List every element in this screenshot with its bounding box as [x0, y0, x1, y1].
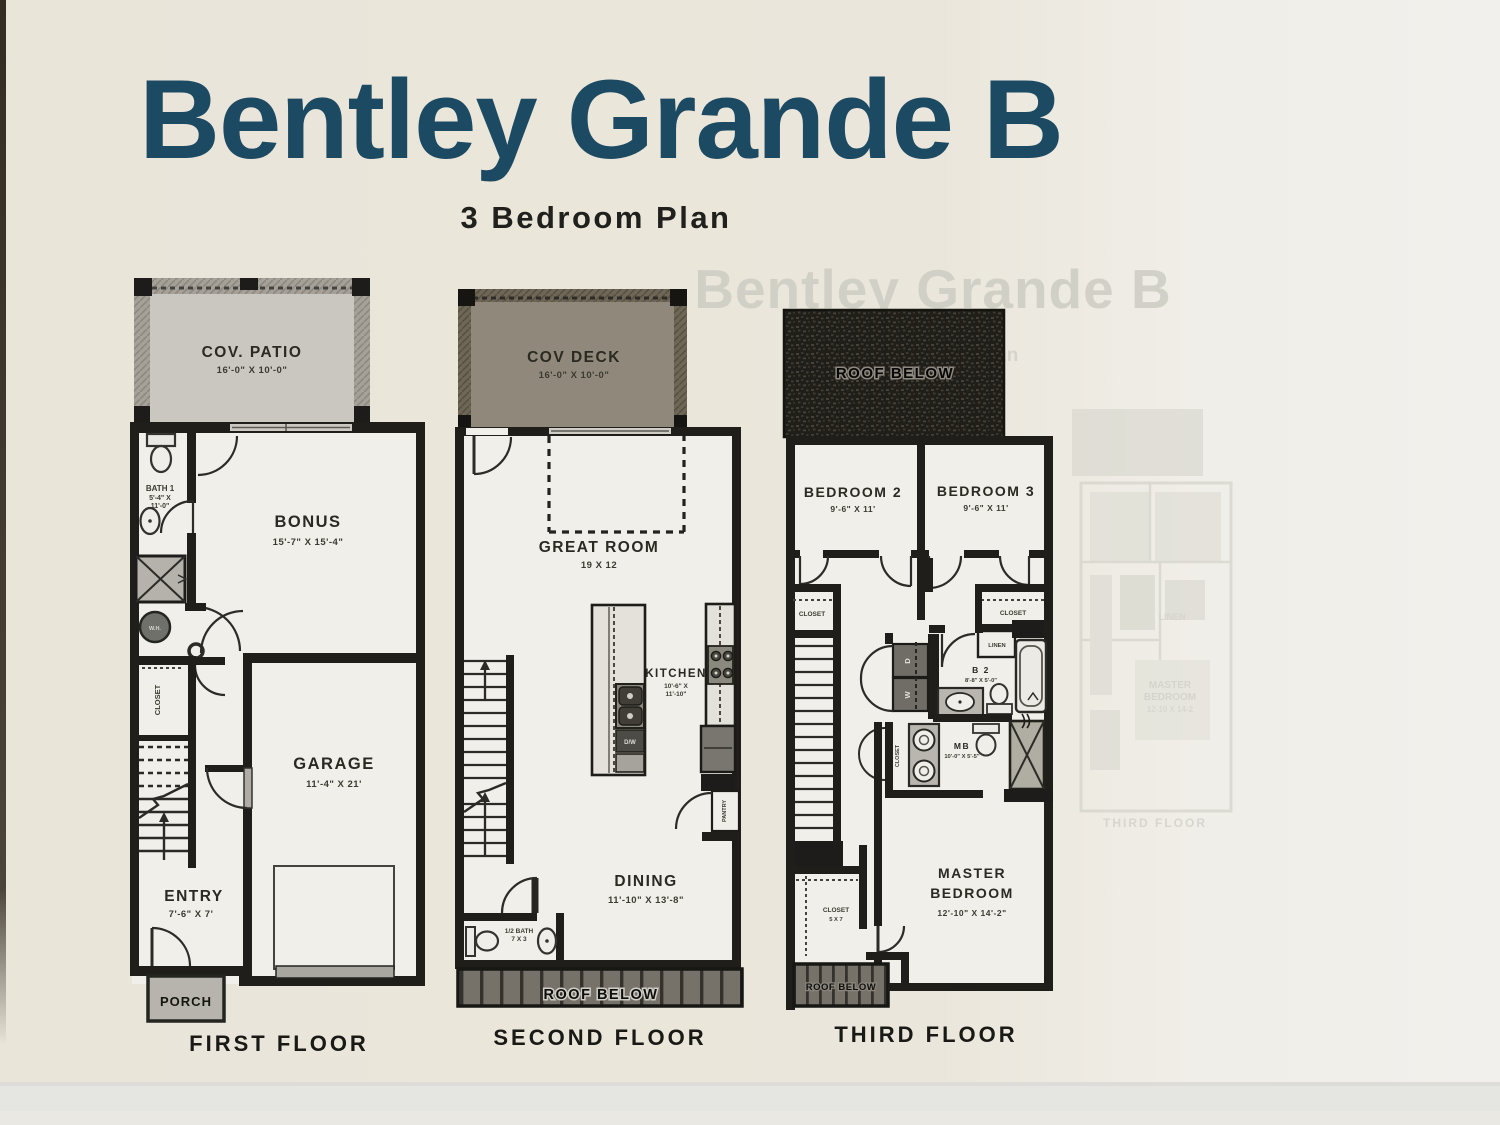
svg-text:3 Bedroom Plan: 3 Bedroom Plan [461, 200, 732, 235]
svg-text:BEDROOM: BEDROOM [1144, 692, 1196, 703]
svg-text:11'-4" X 21': 11'-4" X 21' [306, 779, 362, 790]
svg-text:B 2: B 2 [972, 665, 990, 675]
svg-text:GARAGE: GARAGE [293, 755, 374, 773]
svg-text:ROOF BELOW: ROOF BELOW [836, 365, 954, 382]
svg-text:MASTER: MASTER [938, 865, 1006, 881]
svg-text:16'-0" X 10'-0": 16'-0" X 10'-0" [539, 370, 610, 381]
svg-text:19 X 12: 19 X 12 [581, 560, 617, 571]
svg-text:W.H.: W.H. [149, 626, 161, 632]
svg-text:9'-6" X 11': 9'-6" X 11' [830, 504, 875, 514]
svg-text:5 X 7: 5 X 7 [829, 917, 843, 923]
svg-text:Bentley Grande B: Bentley Grande B [139, 57, 1063, 182]
svg-text:BONUS: BONUS [274, 513, 341, 531]
svg-text:THIRD FLOOR: THIRD FLOOR [834, 1022, 1017, 1047]
svg-text:MASTER: MASTER [1149, 680, 1192, 691]
svg-text:11'-10": 11'-10" [666, 691, 687, 698]
svg-text:LINEN: LINEN [988, 643, 1005, 649]
svg-text:8'-8" X 5'-0": 8'-8" X 5'-0" [965, 678, 997, 684]
svg-text:15'-7" X 15'-4": 15'-7" X 15'-4" [273, 537, 344, 548]
svg-text:MB: MB [954, 741, 970, 751]
svg-text:BEDROOM 2: BEDROOM 2 [804, 484, 902, 500]
svg-text:PANTRY: PANTRY [722, 800, 728, 822]
svg-text:1/2 BATH: 1/2 BATH [505, 928, 534, 935]
svg-text:COV DECK: COV DECK [527, 349, 621, 366]
svg-text:BEDROOM 3: BEDROOM 3 [937, 483, 1035, 499]
svg-text:CLOSET: CLOSET [799, 611, 825, 618]
svg-text:11'-10" X 13'-8": 11'-10" X 13'-8" [608, 895, 684, 906]
svg-text:DINING: DINING [614, 873, 677, 890]
svg-text:SECOND FLOOR: SECOND FLOOR [493, 1025, 706, 1050]
svg-text:THIRD FLOOR: THIRD FLOOR [1103, 816, 1207, 830]
svg-text:ROOF BELOW: ROOF BELOW [544, 987, 659, 1003]
svg-text:10'-0" X 5'-5": 10'-0" X 5'-5" [944, 754, 980, 760]
svg-text:7 X 3: 7 X 3 [511, 936, 527, 943]
svg-text:CLOSET: CLOSET [895, 744, 901, 767]
svg-text:D: D [903, 658, 912, 664]
svg-text:12-10 X 14-2: 12-10 X 14-2 [1147, 705, 1194, 714]
svg-text:W: W [903, 691, 912, 699]
svg-text:FIRST FLOOR: FIRST FLOOR [189, 1031, 369, 1056]
svg-text:5'-4" X: 5'-4" X [149, 495, 171, 502]
svg-text:PORCH: PORCH [160, 994, 212, 1009]
svg-text:16'-0" X 10'-0": 16'-0" X 10'-0" [217, 365, 288, 376]
svg-text:BEDROOM: BEDROOM [930, 885, 1014, 901]
svg-text:7'-6" X 7': 7'-6" X 7' [169, 909, 214, 920]
svg-text:12'-10" X 14'-2": 12'-10" X 14'-2" [937, 908, 1006, 918]
svg-text:ENTRY: ENTRY [164, 888, 223, 905]
svg-text:KITCHEN: KITCHEN [645, 668, 707, 680]
svg-text:BATH 1: BATH 1 [146, 484, 175, 493]
svg-text:D/W: D/W [624, 740, 636, 746]
svg-text:COV. PATIO: COV. PATIO [202, 344, 303, 361]
svg-text:CLOSET: CLOSET [823, 907, 849, 914]
svg-text:CLOSET: CLOSET [1000, 610, 1026, 617]
svg-text:9'-6" X 11': 9'-6" X 11' [963, 503, 1008, 513]
svg-text:LINEN: LINEN [1159, 612, 1186, 622]
svg-text:ROOF BELOW: ROOF BELOW [806, 982, 876, 993]
svg-text:GREAT ROOM: GREAT ROOM [539, 539, 660, 556]
svg-text:10'-6" X: 10'-6" X [664, 683, 688, 690]
svg-text:CLOSET: CLOSET [153, 684, 162, 715]
